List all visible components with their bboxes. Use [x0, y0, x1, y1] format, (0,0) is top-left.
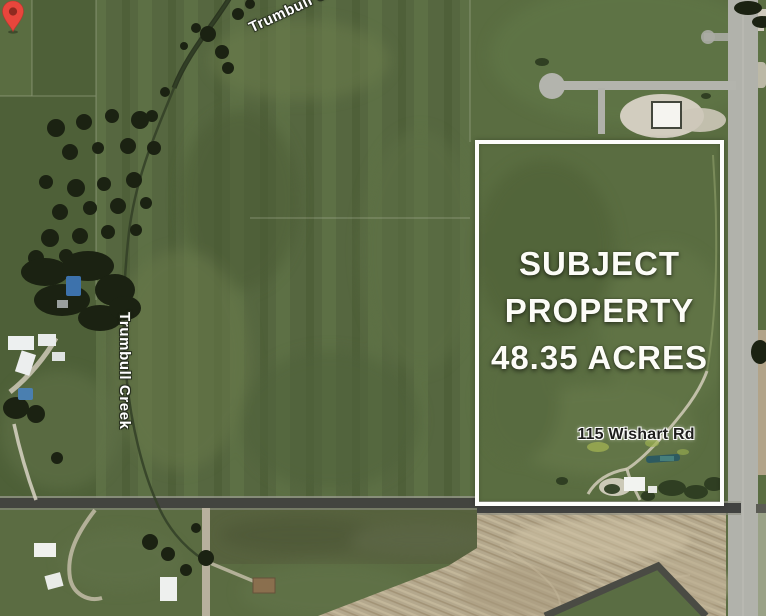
map-pin-icon [0, 0, 26, 34]
property-title-line3: 48.35 ACRES [475, 334, 724, 381]
road-access [552, 81, 736, 90]
building-blue-roof [66, 276, 81, 296]
property-title-line1: SUBJECT [475, 240, 724, 287]
creek-label-left: Trumbull Creek [116, 312, 133, 430]
aerial-map: SUBJECT PROPERTY 48.35 ACRES 115 Wishart… [0, 0, 766, 616]
property-title-line2: PROPERTY [475, 287, 724, 334]
property-title: SUBJECT PROPERTY 48.35 ACRES [475, 240, 724, 381]
address-label: 115 Wishart Rd [558, 426, 714, 444]
building-warehouse [652, 102, 681, 128]
road-wishart-west [0, 498, 479, 508]
